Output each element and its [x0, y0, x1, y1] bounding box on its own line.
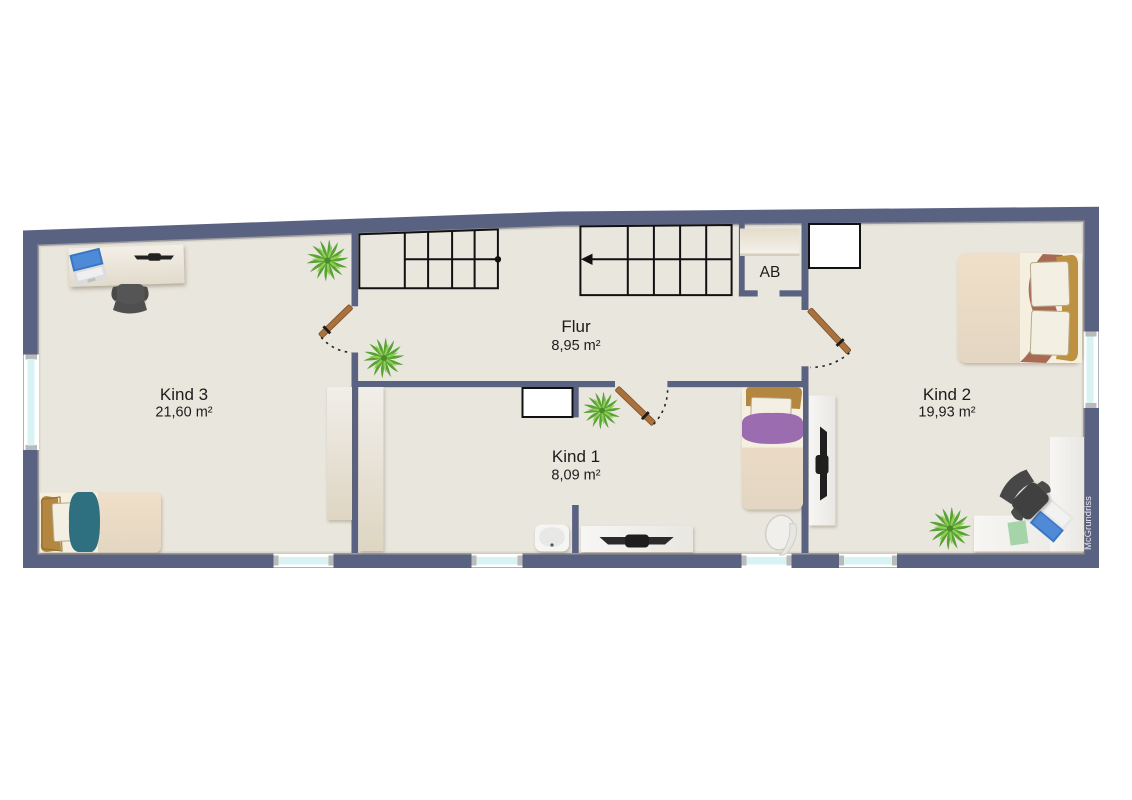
svg-text:AB: AB: [760, 264, 781, 281]
svg-text:Flur: Flur: [561, 317, 591, 336]
svg-text:21,60 m²: 21,60 m²: [155, 405, 212, 421]
svg-text:Kind 2: Kind 2: [923, 385, 971, 404]
svg-text:8,95 m²: 8,95 m²: [551, 338, 600, 354]
svg-text:Kind 1: Kind 1: [552, 447, 600, 466]
svg-text:Kind 3: Kind 3: [160, 385, 208, 404]
svg-text:19,93 m²: 19,93 m²: [918, 405, 975, 421]
svg-text:8,09 m²: 8,09 m²: [551, 468, 600, 484]
svg-text:McGrundriss: McGrundriss: [1083, 496, 1094, 550]
